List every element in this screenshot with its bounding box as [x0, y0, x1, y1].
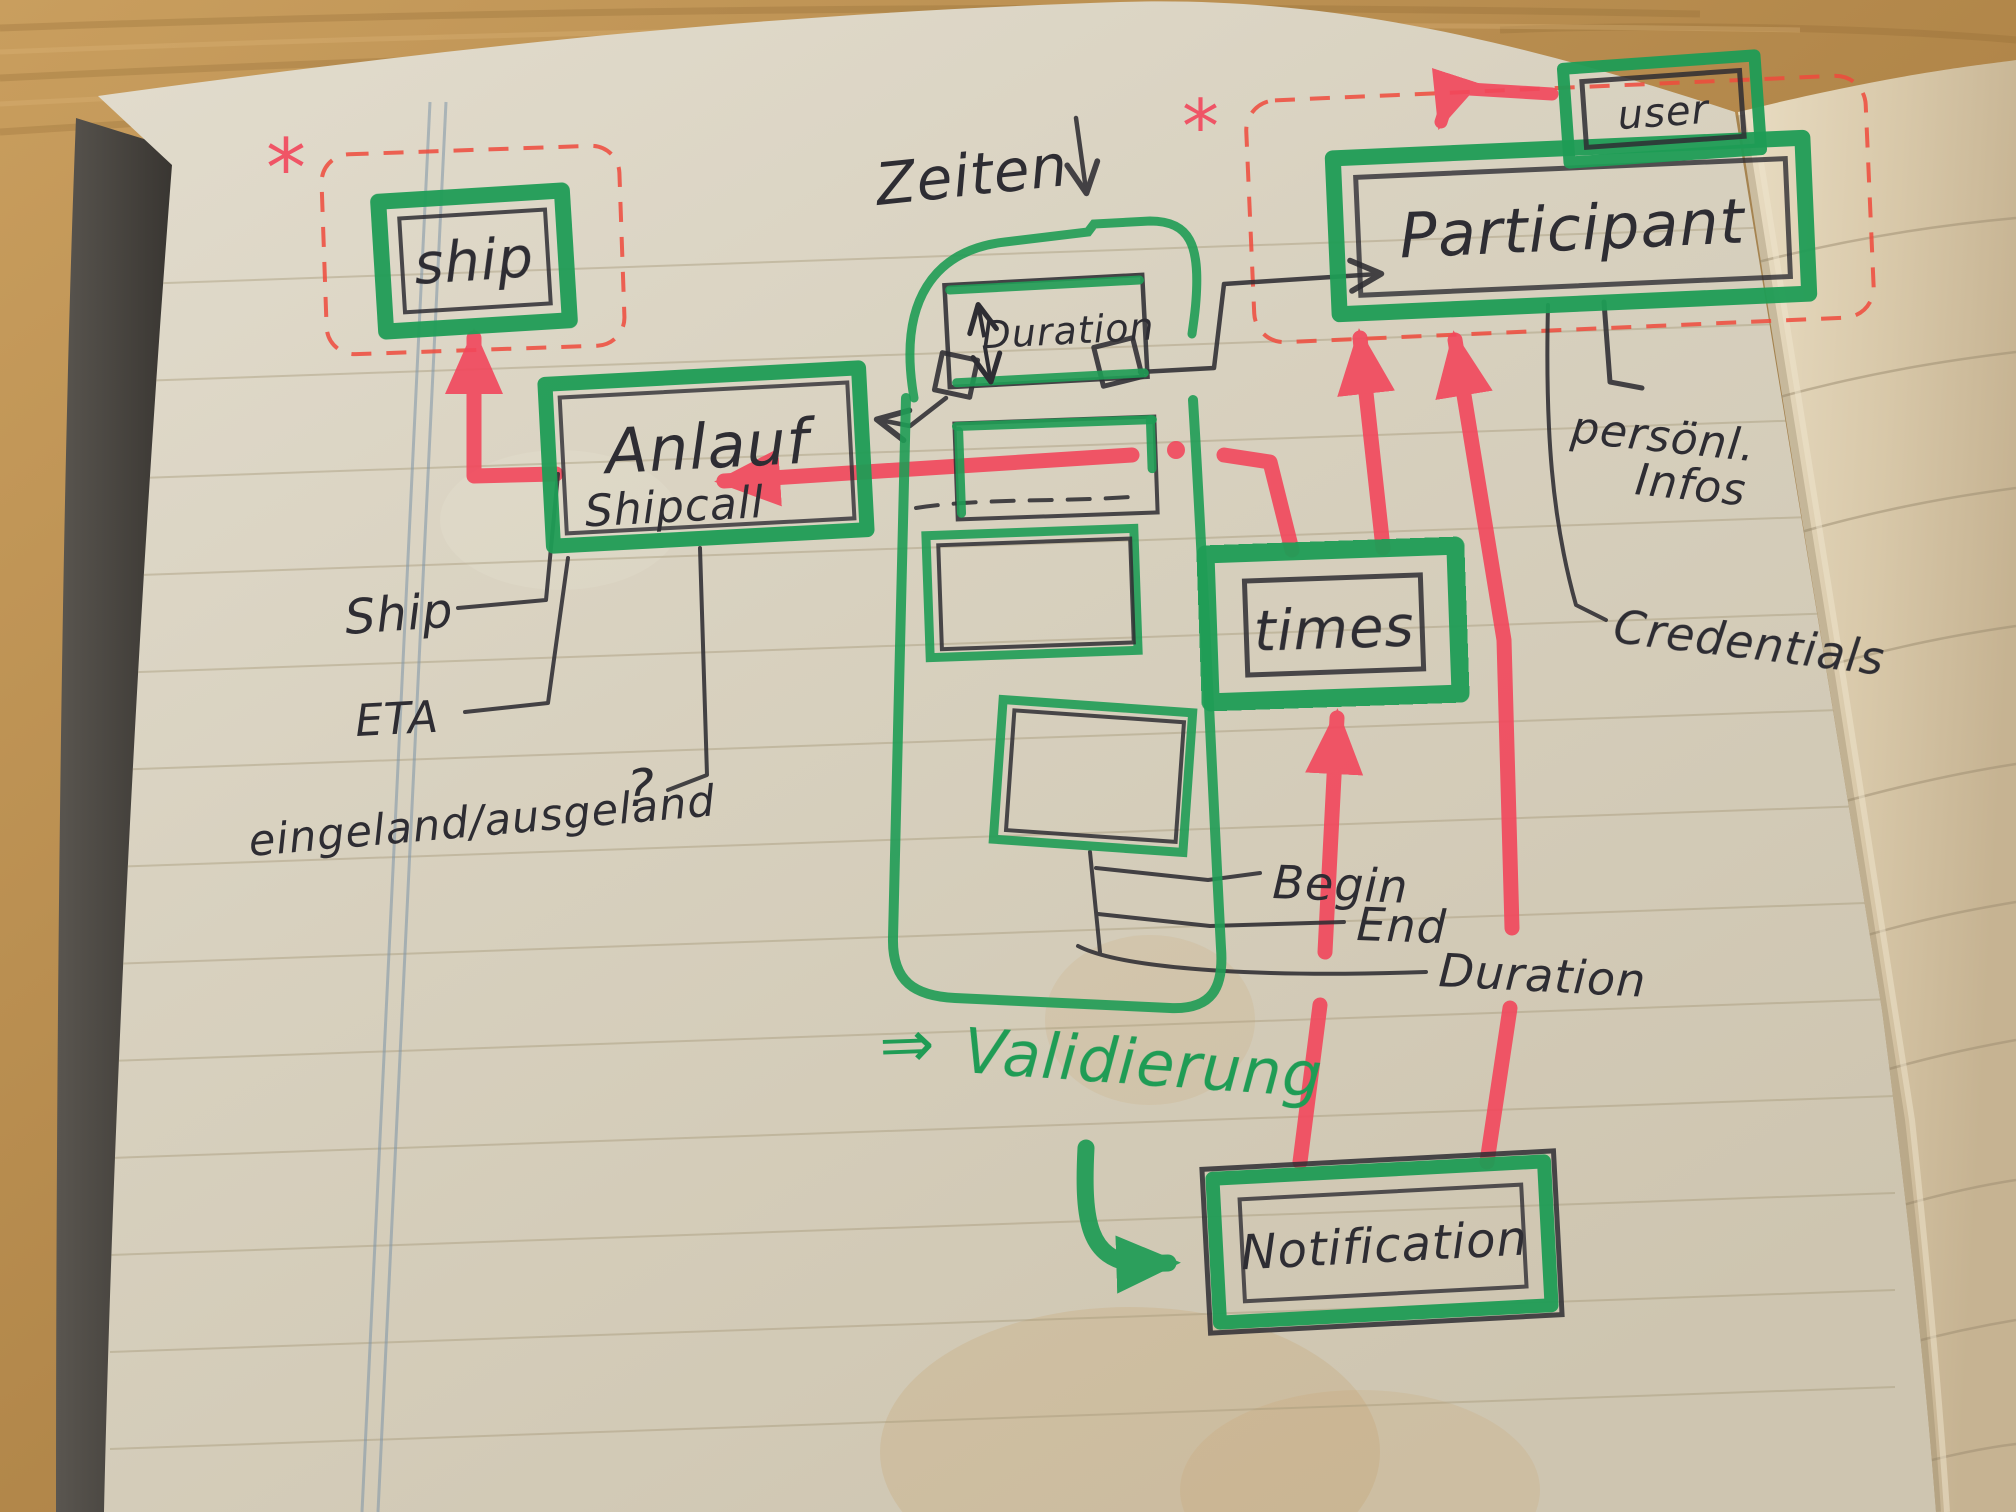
end-label: End — [1356, 897, 1448, 954]
duration-box-label: Duration — [980, 304, 1155, 357]
participant-label: Participant — [1398, 184, 1748, 272]
duration-attr-label: Duration — [1437, 943, 1647, 1008]
notebook-photo: * * — [0, 0, 2016, 1512]
ship-attr-label: Ship — [343, 583, 455, 646]
shipcall-label: Shipcall — [584, 477, 766, 537]
asterisk-ship: * — [266, 122, 306, 215]
anlauf-label: Anlauf — [600, 404, 819, 488]
ship-label: ship — [412, 225, 536, 297]
user-label: user — [1616, 87, 1712, 139]
question-mark: ? — [626, 759, 655, 819]
eta-label: ETA — [354, 692, 440, 747]
red-dot — [1167, 441, 1185, 459]
asterisk-participant: * — [1182, 84, 1219, 170]
validierung-arrow: ⇒ — [878, 1005, 936, 1084]
times-label: times — [1253, 594, 1416, 665]
